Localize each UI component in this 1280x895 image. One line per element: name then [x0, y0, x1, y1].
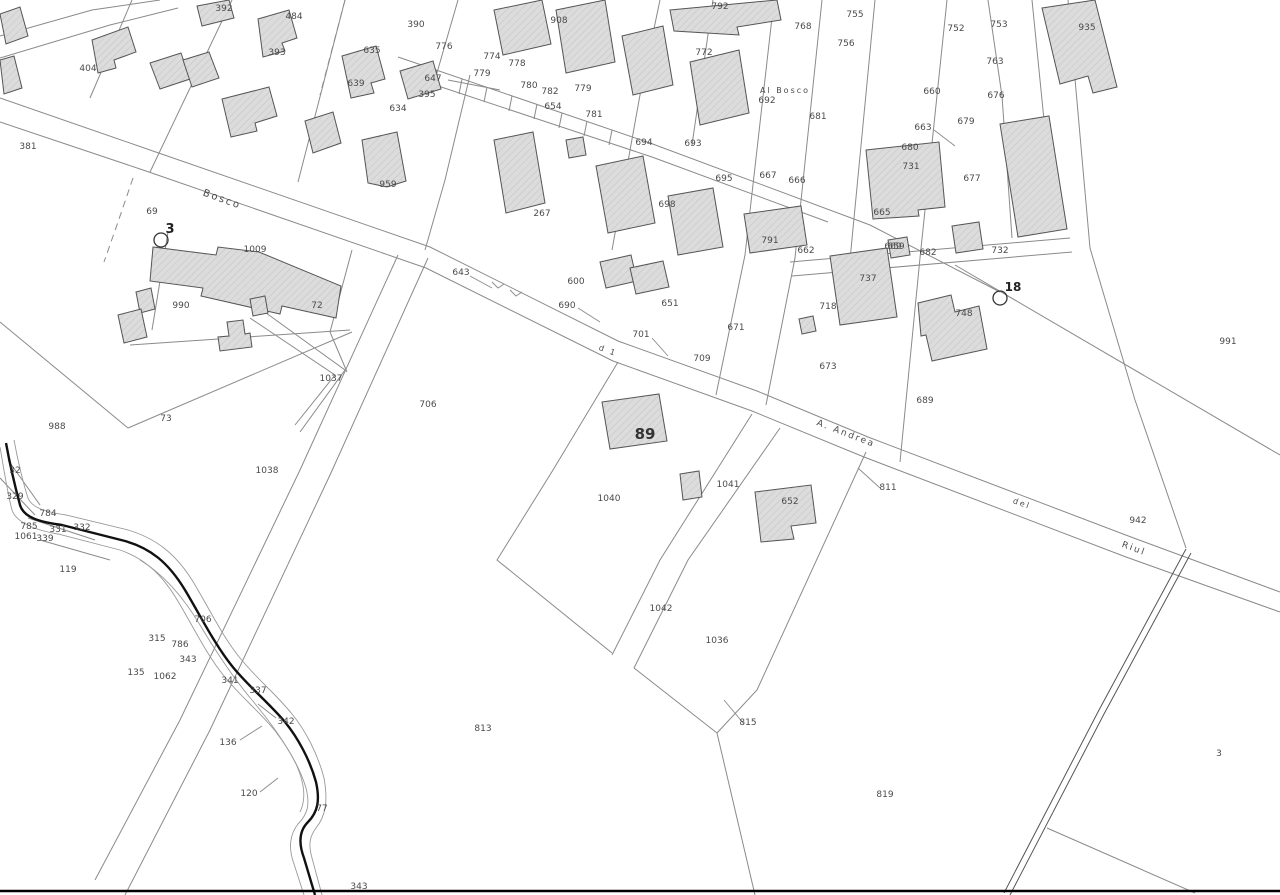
parcel-label: 393 [268, 48, 285, 58]
parcel-label: 681 [809, 112, 826, 122]
parcel-label: 1036 [706, 636, 729, 646]
parcel-label: 692 [758, 96, 775, 106]
parcel-label: 959 [379, 180, 396, 190]
parcel-label: 694 [635, 138, 652, 148]
parcel-label: 709 [693, 354, 710, 364]
parcel-label: 32 [9, 466, 20, 476]
parcel-label: 698 [658, 200, 675, 210]
parcel-label: 654 [544, 102, 561, 112]
parcel-label: 665 [873, 208, 890, 218]
parcel-label: 689 [916, 396, 933, 406]
survey-marker-label: 3 [165, 222, 174, 237]
parcel-label: 647 [424, 74, 441, 84]
parcel-label: 339 [36, 534, 53, 544]
parcel-label: 737 [859, 274, 876, 284]
parcel-label: 776 [435, 42, 452, 52]
parcel-label: 1037 [320, 374, 343, 384]
parcel-label: 701 [632, 330, 649, 340]
parcel-label: 791 [761, 236, 778, 246]
parcel-label: 718 [819, 302, 836, 312]
parcel-label: 792 [711, 2, 728, 12]
parcel-label: 811 [879, 483, 896, 493]
parcel-label: 991 [1219, 337, 1236, 347]
parcel-label: 667 [759, 171, 776, 181]
parcel-label: 381 [19, 142, 36, 152]
parcel-label: 768 [794, 22, 811, 32]
parcel-label: 677 [963, 174, 980, 184]
parcel-label: 676 [987, 91, 1004, 101]
parcel-label: 332 [73, 523, 90, 533]
parcel-label: 652 [781, 497, 798, 507]
parcel-label: 3 [1216, 749, 1222, 759]
parcel-label: 136 [219, 738, 236, 748]
parcel-label: 988 [48, 422, 65, 432]
parcel-label: 1009 [244, 245, 267, 255]
parcel-label: 1042 [650, 604, 673, 614]
parcel-label: 267 [533, 209, 550, 219]
parcel-label: 73 [160, 414, 171, 424]
parcel-label: 782 [541, 87, 558, 97]
parcel-label: 1040 [598, 494, 621, 504]
parcel-label: 395 [418, 90, 435, 100]
parcel-label: 780 [520, 81, 537, 91]
parcel-label: 990 [172, 301, 189, 311]
parcel-label: 753 [990, 20, 1007, 30]
parcel-label: 671 [727, 323, 744, 333]
parcel-label: 786 [171, 640, 188, 650]
parcel-label: 660 [923, 87, 940, 97]
parcel-label: 1038 [256, 466, 279, 476]
parcel-label: 706 [419, 400, 436, 410]
parcel-label: 342 [277, 717, 294, 727]
parcel-label: 935 [1078, 23, 1095, 33]
parcel-label: 680 [901, 143, 918, 153]
parcel-label: 77 [316, 804, 327, 814]
parcel-label: 732 [991, 246, 1008, 256]
parcel-label: 662 [797, 246, 814, 256]
parcel-label: 639 [347, 79, 364, 89]
parcel-label: 666 [788, 176, 805, 186]
parcel-label: 341 [221, 676, 238, 686]
parcel-label: 682 [919, 248, 936, 258]
parcel-label: 89 [635, 425, 656, 443]
parcel-label: 693 [684, 139, 701, 149]
parcel-label: 315 [148, 634, 165, 644]
parcel-label: 772 [695, 48, 712, 58]
parcel-label: 774 [483, 52, 500, 62]
parcel-label: 779 [574, 84, 591, 94]
parcel-label: 1062 [154, 672, 177, 682]
parcel-label: 673 [819, 362, 836, 372]
parcel-label: 651 [661, 299, 678, 309]
parcel-label: 763 [986, 57, 1003, 67]
parcel-label: 752 [947, 24, 964, 34]
map-canvas: 318 392484393404381390908635639647395634… [0, 0, 1280, 895]
parcel-label: 135 [127, 668, 144, 678]
parcel-label: 72 [311, 301, 322, 311]
parcel-label: 120 [240, 789, 257, 799]
parcel-label: 785 [20, 522, 37, 532]
parcel-label: 635 [363, 46, 380, 56]
parcel-label: 392 [215, 4, 232, 14]
parcel-label: 343 [179, 655, 196, 665]
parcel-label: 390 [407, 20, 424, 30]
map-background [0, 0, 1280, 895]
parcel-label: 600 [567, 277, 584, 287]
parcel-label: 659 [887, 242, 904, 252]
parcel-label: 778 [508, 59, 525, 69]
parcel-label: 643 [452, 268, 469, 278]
parcel-label: 755 [846, 10, 863, 20]
road-name-label: Al Bosco [760, 86, 810, 95]
parcel-label: 337 [249, 686, 266, 696]
parcel-label: 813 [474, 724, 491, 734]
parcel-label: 942 [1129, 516, 1146, 526]
parcel-label: 695 [715, 174, 732, 184]
parcel-label: 343 [350, 882, 367, 892]
parcel-label: 781 [585, 110, 602, 120]
parcel-label: 756 [837, 39, 854, 49]
parcel-label: 690 [558, 301, 575, 311]
parcel-label: 663 [914, 123, 931, 133]
cadastral-map-sheet: 318 392484393404381390908635639647395634… [0, 0, 1280, 895]
parcel-label: 819 [876, 790, 893, 800]
parcel-label: 908 [550, 16, 567, 26]
parcel-label: 731 [902, 162, 919, 172]
parcel-label: 484 [285, 12, 302, 22]
parcel-label: 634 [389, 104, 406, 114]
parcel-label: 784 [39, 509, 56, 519]
parcel-label: 1061 [15, 532, 38, 542]
parcel-label: 706 [194, 615, 211, 625]
parcel-label: 69 [146, 207, 158, 217]
parcel-label: 815 [739, 718, 756, 728]
survey-marker-label: 18 [1005, 280, 1022, 294]
parcel-label: 1041 [717, 480, 740, 490]
parcel-label: 119 [59, 565, 76, 575]
parcel-label: 748 [955, 309, 972, 319]
parcel-label: 404 [79, 64, 96, 74]
parcel-label: 329 [6, 492, 23, 502]
parcel-label: 679 [957, 117, 974, 127]
parcel-label: 779 [473, 69, 490, 79]
